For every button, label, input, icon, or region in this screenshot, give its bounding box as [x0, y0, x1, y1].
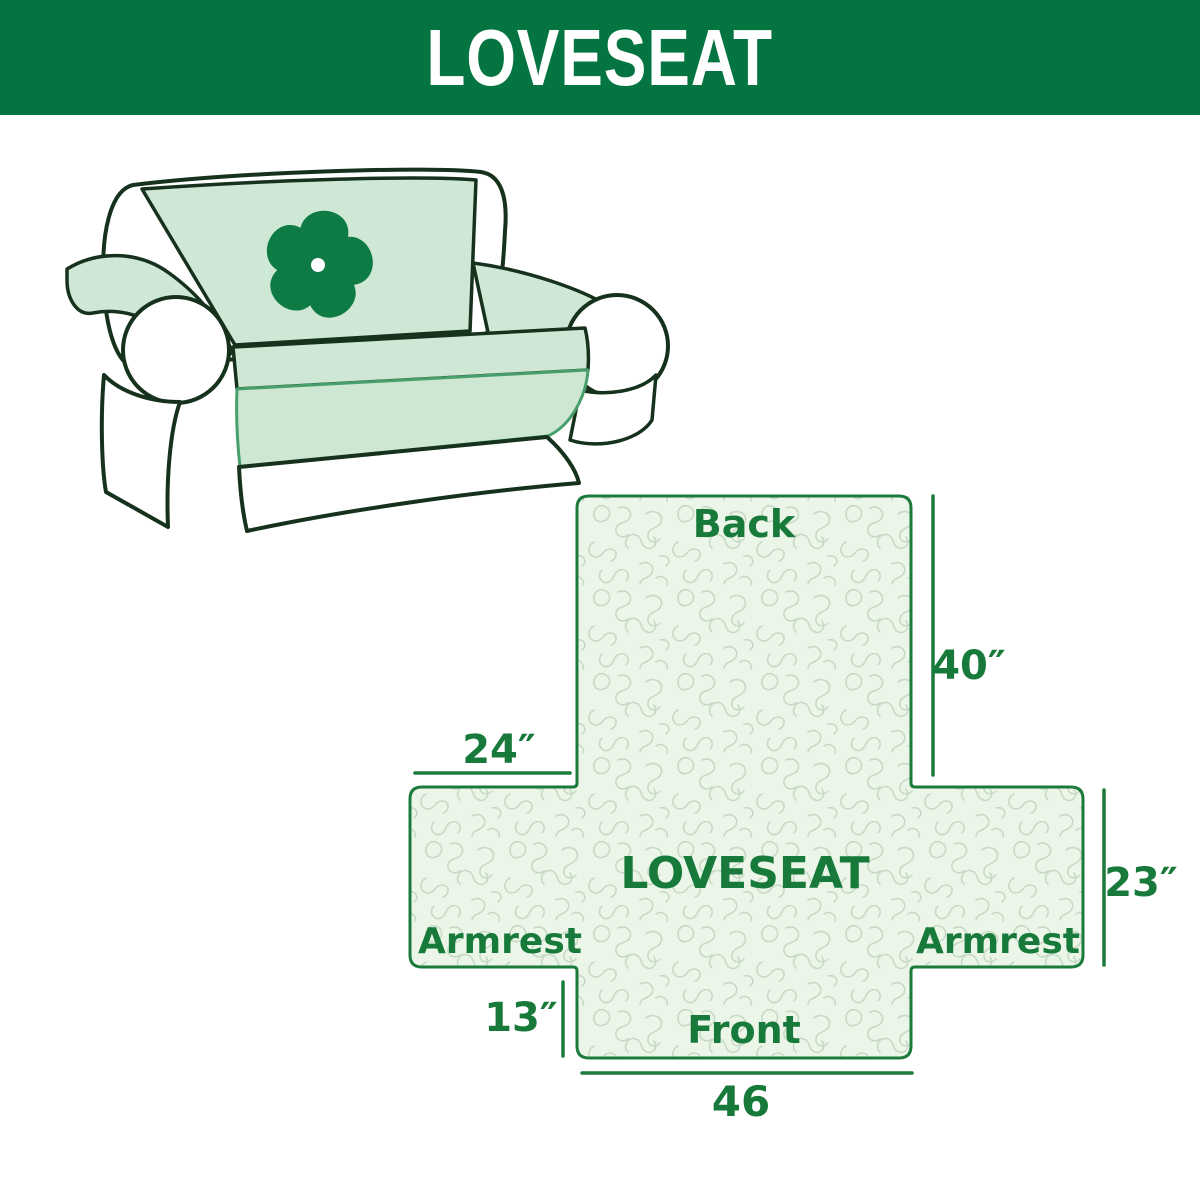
label-armrest-right: Armrest [916, 921, 1080, 962]
measure-front-drop: 13″ [484, 995, 558, 1041]
measure-back-height: 40″ [932, 643, 1006, 689]
label-back: Back [693, 502, 796, 546]
label-center: LOVESEAT [620, 848, 869, 899]
cover-diagram: Back Front Armrest Armrest LOVESEAT 40″ … [0, 0, 1200, 1200]
measure-seat-depth: 23″ [1104, 860, 1178, 906]
measure-front-width: 46 [712, 1077, 770, 1126]
measure-armrest-width: 24″ [462, 727, 536, 773]
label-front: Front [687, 1008, 801, 1052]
cover-diagram-shape [410, 496, 1083, 1058]
label-armrest-left: Armrest [418, 921, 582, 962]
